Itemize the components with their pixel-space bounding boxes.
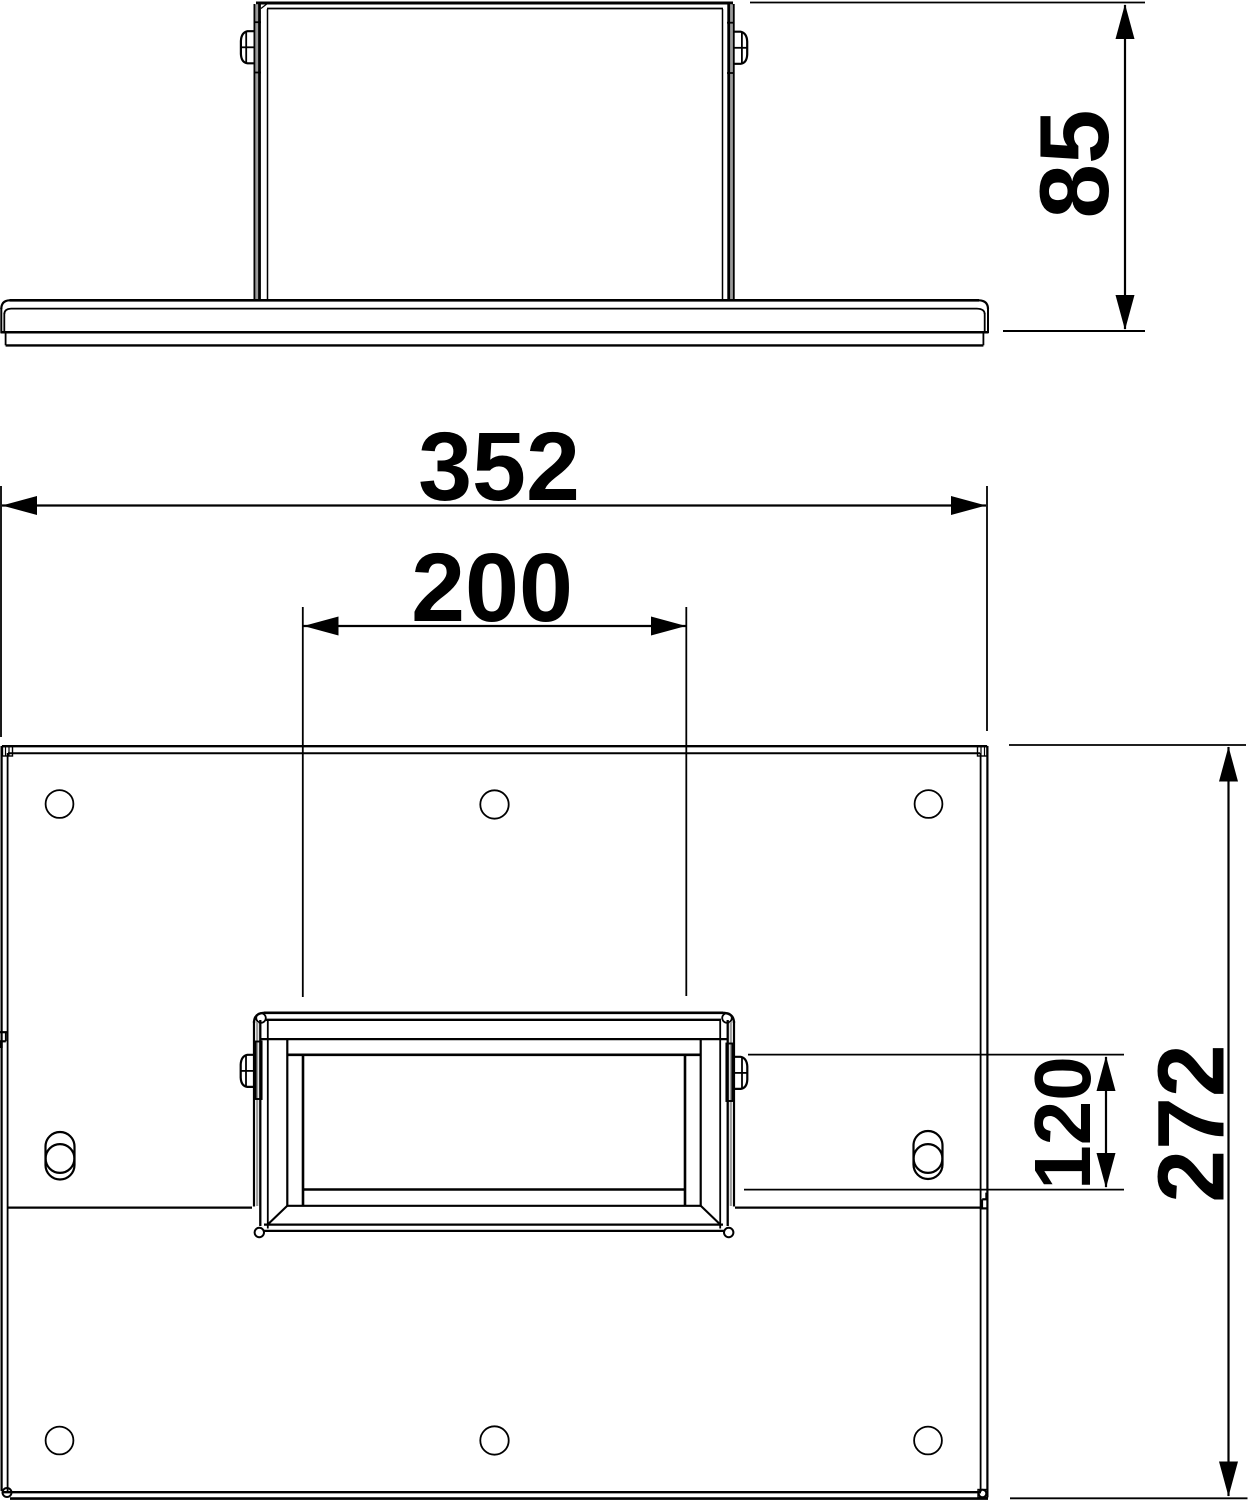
svg-text:272: 272	[1139, 1044, 1245, 1203]
svg-text:200: 200	[411, 533, 573, 642]
svg-text:120: 120	[1018, 1056, 1107, 1189]
svg-text:85: 85	[1019, 109, 1129, 218]
svg-text:352: 352	[418, 412, 580, 521]
